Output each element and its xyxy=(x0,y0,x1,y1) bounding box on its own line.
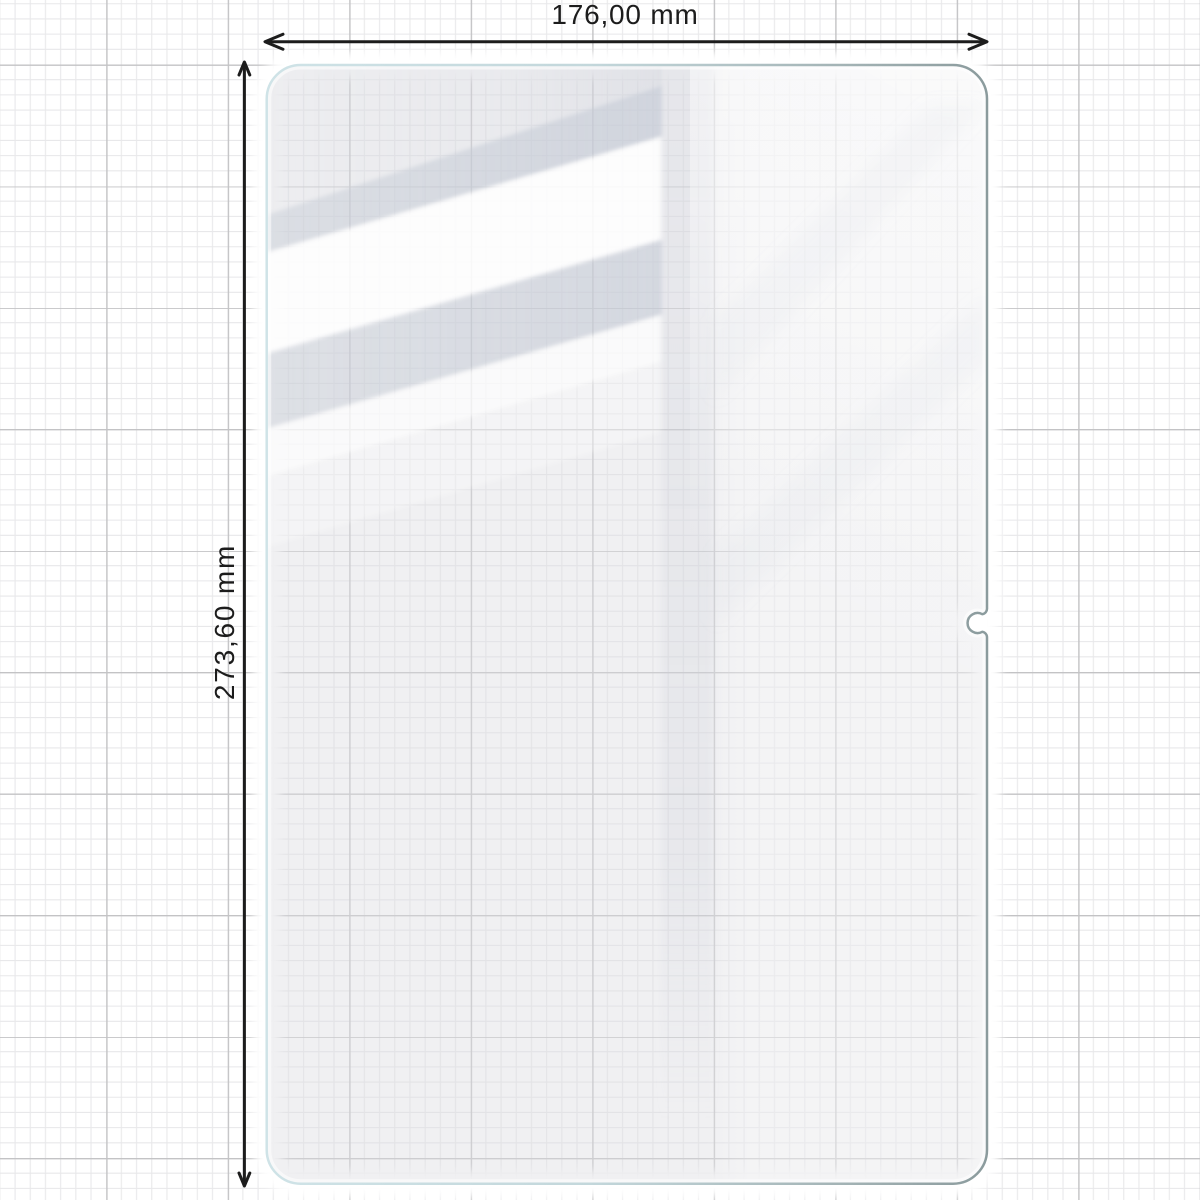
svg-text:273,60 mm: 273,60 mm xyxy=(209,544,240,700)
svg-text:176,00 mm: 176,00 mm xyxy=(551,0,698,30)
